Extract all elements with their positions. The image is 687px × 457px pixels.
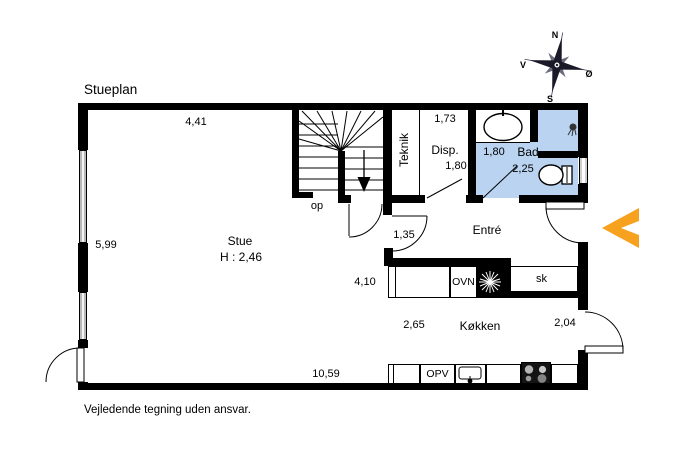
counter-plain [486, 364, 521, 384]
wall-stair-stub [292, 192, 313, 198]
counter-divider [393, 364, 394, 384]
room-label-kokken: Køkken [450, 319, 510, 333]
counter-plain [551, 364, 578, 384]
floor-plan-canvas: Stueplan Vejledende tegning uden ansvar.… [0, 0, 687, 457]
wall-right [578, 103, 588, 157]
wall-left [78, 340, 88, 348]
wall-closet-back [503, 291, 588, 298]
wall-counter-back [385, 258, 505, 266]
kitchen-sink-box [455, 364, 486, 384]
dim-stue-left: 5,99 [83, 239, 129, 251]
window-left-lower [79, 292, 87, 340]
closet-box: sk [505, 266, 578, 292]
dim-kokken-right: 2,04 [543, 317, 587, 329]
extractor-hob-icon [477, 266, 504, 298]
dim-kokken-width: 2,65 [392, 319, 436, 331]
dim-bottom: 10,59 [302, 368, 350, 380]
compass-west-label: V [520, 60, 526, 70]
window-bad [579, 157, 588, 184]
dim-hall-door: 1,35 [388, 229, 420, 241]
wall-teknik-disp-thin [419, 110, 420, 195]
compass-rose-icon: N S V Ø [505, 22, 605, 107]
dim-disp-depth: 1,80 [434, 160, 478, 172]
wall-stair-hinge-stub [341, 195, 351, 203]
window-left-upper [79, 150, 87, 243]
wall-stair-left [292, 110, 299, 198]
room-label-entre: Entré [462, 223, 512, 237]
counter-divider [395, 266, 396, 298]
wall-left [78, 103, 88, 150]
wall-sink-stub [530, 110, 538, 142]
wall-hall-top [466, 195, 483, 203]
compass-north-label: N [552, 30, 559, 40]
wall-bad-bottom [519, 195, 588, 203]
dim-disp-width: 1,73 [423, 113, 467, 125]
dim-counter: 4,10 [343, 276, 387, 288]
page-title: Stueplan [84, 82, 137, 97]
entrance-arrow-icon [596, 205, 642, 251]
dim-stue-top: 4,41 [171, 116, 221, 128]
wall-left [78, 382, 88, 390]
disclaimer-text: Vejledende tegning uden ansvar. [84, 404, 251, 416]
room-label-teknik: Teknik [397, 127, 411, 173]
room-label-disp: Disp. [423, 143, 467, 157]
wall-bottom [78, 383, 588, 390]
wall-right [578, 350, 588, 390]
stair-down-arrow-icon [358, 177, 371, 192]
stairs-up-label: op [302, 200, 332, 212]
dim-bad-depth: 2,25 [501, 163, 545, 175]
counter-top-left [388, 266, 450, 298]
wall-hall-top [383, 195, 425, 203]
cooktop-icon [521, 362, 551, 384]
oven-box: OVN [450, 266, 477, 298]
bad-sink-counter [476, 110, 530, 143]
wall-right [578, 242, 588, 310]
compass-east-label: Ø [585, 69, 592, 79]
room-label-bad: Bad [506, 145, 550, 159]
stue-ceiling-height: H : 2,46 [211, 250, 271, 264]
wall-top [78, 103, 588, 110]
dishwasher-box: OPV [420, 364, 455, 384]
room-label-stue: Stue [215, 234, 265, 248]
